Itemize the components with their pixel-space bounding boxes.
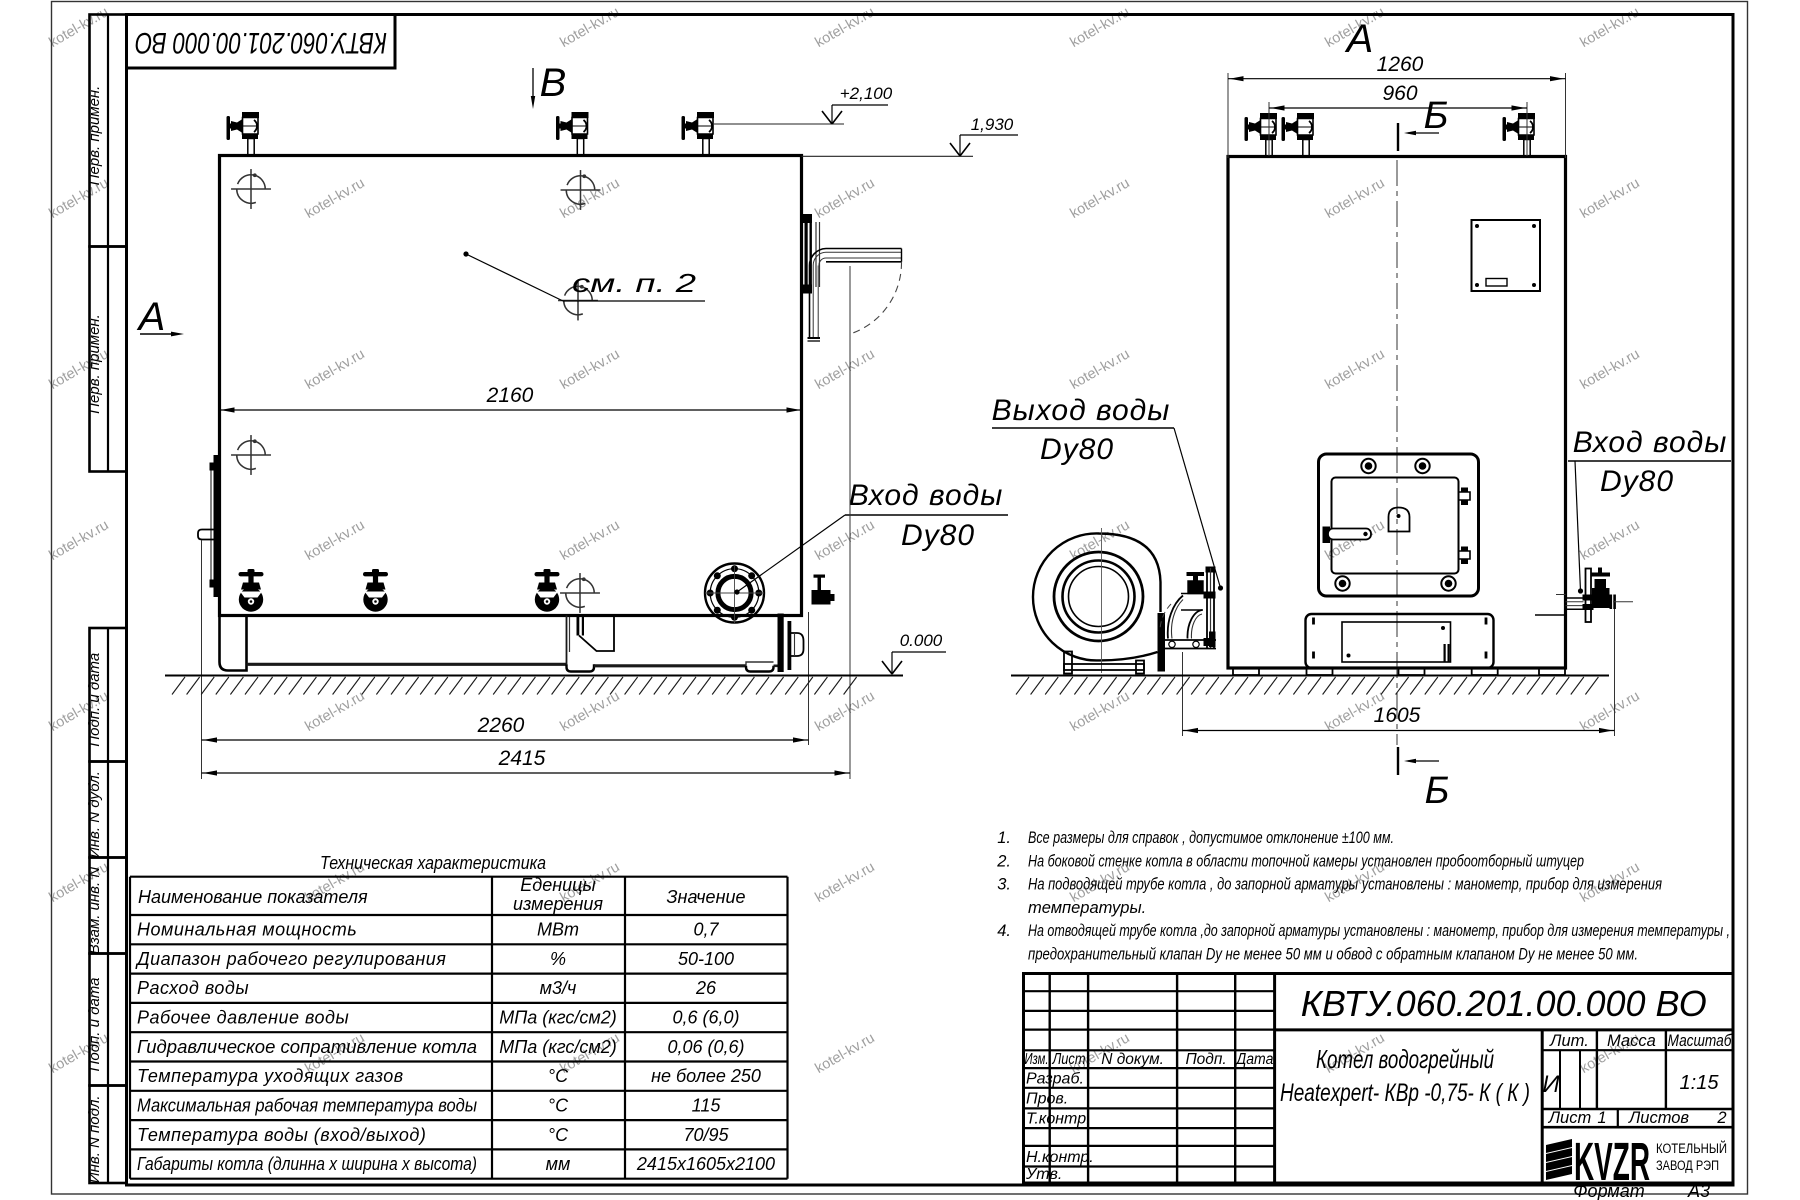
svg-text:1: 1: [1597, 1109, 1606, 1127]
svg-text:На боковой стенке котла в обла: На боковой стенке котла в области топочн…: [1028, 852, 1584, 870]
svg-text:Подп.: Подп.: [1185, 1051, 1226, 1068]
svg-text:Подп. и дата: Подп. и дата: [86, 653, 103, 747]
svg-text:Температура уходящих газов: Температура уходящих газов: [137, 1066, 404, 1086]
svg-text:Наименование показателя: Наименование показателя: [138, 887, 368, 907]
svg-text:МПа (кгс/см2): МПа (кгс/см2): [499, 1037, 617, 1057]
svg-text:°С: °С: [548, 1066, 569, 1086]
svg-text:МПа (кгс/см2): МПа (кгс/см2): [499, 1008, 617, 1028]
svg-text:А: А: [1345, 17, 1374, 61]
svg-text:Рабочее давление воды: Рабочее давление воды: [137, 1008, 349, 1028]
svg-text:1260: 1260: [1377, 53, 1424, 76]
svg-text:Выход воды: Выход воды: [992, 394, 1171, 427]
svg-text:Вход воды: Вход воды: [849, 479, 1004, 512]
svg-text:Dy80: Dy80: [1040, 433, 1114, 466]
svg-text:1,930: 1,930: [971, 115, 1014, 134]
svg-text:1605: 1605: [1374, 704, 1421, 727]
svg-text:Формат: Формат: [1573, 1181, 1644, 1200]
svg-text:Подп. и дата: Подп. и дата: [86, 978, 103, 1072]
svg-text:Вход воды: Вход воды: [1573, 426, 1728, 459]
svg-text:Все размеры для справок , допу: Все размеры для справок , допустимое отк…: [1028, 829, 1394, 847]
svg-text:Масса: Масса: [1607, 1032, 1656, 1050]
svg-text:КВТУ.060.201.00.000 ВО: КВТУ.060.201.00.000 ВО: [1301, 983, 1707, 1024]
svg-text:Разраб.: Разраб.: [1026, 1071, 1084, 1088]
svg-text:Н.контр.: Н.контр.: [1026, 1149, 1094, 1166]
svg-text:2260: 2260: [477, 714, 525, 737]
svg-text:Лит.: Лит.: [1549, 1032, 1589, 1050]
svg-text:И: И: [1542, 1071, 1560, 1098]
svg-text:115: 115: [692, 1095, 722, 1115]
svg-text:ЗАВОД РЭП: ЗАВОД РЭП: [1656, 1158, 1719, 1173]
svg-text:Еденицы: Еденицы: [520, 875, 595, 895]
svg-text:1.: 1.: [997, 829, 1011, 847]
svg-text:4.: 4.: [997, 922, 1011, 940]
svg-text:+2,100: +2,100: [840, 84, 893, 103]
svg-text:Габариты котла (длинна х ширин: Габариты котла (длинна х ширина х высота…: [137, 1154, 477, 1174]
svg-text:Dy80: Dy80: [1600, 465, 1674, 498]
svg-text:0.000: 0.000: [900, 631, 943, 650]
svg-text:50-100: 50-100: [678, 949, 734, 969]
svg-text:960: 960: [1382, 82, 1417, 105]
svg-text:Номинальная мощность: Номинальная мощность: [137, 920, 357, 940]
svg-text:70/95: 70/95: [683, 1125, 729, 1145]
svg-text:2415: 2415: [498, 747, 546, 770]
svg-text:1:15: 1:15: [1680, 1072, 1720, 1094]
svg-text:Инв. N дубл.: Инв. N дубл.: [86, 771, 103, 858]
svg-text:Инв. N подл.: Инв. N подл.: [86, 1095, 103, 1183]
svg-text:предохранительный клапан Dу н: предохранительный клапан Dу не менее 50 …: [1028, 946, 1638, 964]
svg-text:2160: 2160: [486, 384, 534, 407]
svg-text:26: 26: [695, 978, 717, 998]
svg-text:А3: А3: [1687, 1181, 1710, 1200]
svg-text:На отводящей трубе котла ,до з: На отводящей трубе котла ,до запорной ар…: [1028, 922, 1730, 940]
svg-text:N докум.: N докум.: [1101, 1051, 1164, 1068]
svg-text:Дата: Дата: [1235, 1051, 1274, 1068]
svg-text:не более 250: не более 250: [651, 1066, 761, 1086]
svg-text:Б: Б: [1424, 95, 1449, 137]
svg-text:измерения: измерения: [513, 894, 603, 914]
svg-text:Лист: Лист: [1052, 1051, 1086, 1068]
svg-text:Т.контр.: Т.контр.: [1026, 1111, 1091, 1128]
svg-text:Heatexpert- КВр -0,75- К ( К ): Heatexpert- КВр -0,75- К ( К ): [1280, 1079, 1530, 1107]
svg-text:0,7: 0,7: [693, 920, 719, 940]
svg-text:3.: 3.: [997, 876, 1011, 894]
svg-text:Техническая характеристика: Техническая характеристика: [320, 852, 546, 873]
svg-text:В: В: [540, 61, 567, 105]
svg-text:Взам. инв. N: Взам. инв. N: [86, 867, 103, 955]
svg-text:мм: мм: [546, 1154, 571, 1174]
svg-text:Перв. примен.: Перв. примен.: [86, 86, 103, 186]
svg-text:Гидравлическое сопративление к: Гидравлическое сопративление котла: [137, 1037, 477, 1057]
svg-text:м3/ч: м3/ч: [540, 978, 577, 998]
svg-text:Изм.: Изм.: [1025, 1051, 1049, 1068]
svg-text:Перв. примен.: Перв. примен.: [86, 314, 103, 414]
svg-text:0,06 (0,6): 0,06 (0,6): [667, 1037, 744, 1057]
svg-text:Утв.: Утв.: [1025, 1166, 1062, 1183]
svg-text:Лист: Лист: [1548, 1109, 1591, 1127]
svg-text:2.: 2.: [996, 852, 1011, 870]
svg-text:Значение: Значение: [666, 887, 745, 907]
svg-text:см. п. 2: см. п. 2: [572, 268, 697, 298]
svg-text:Диапазон рабочего регулировани: Диапазон рабочего регулирования: [135, 949, 446, 969]
svg-text:КОТЕЛЬНЫЙ: КОТЕЛЬНЫЙ: [1656, 1141, 1727, 1156]
svg-text:МВт: МВт: [537, 920, 579, 940]
svg-text:Котел водогрейный: Котел водогрейный: [1316, 1044, 1494, 1074]
svg-text:°С: °С: [548, 1095, 569, 1115]
svg-text:Температура воды (вход/выход): Температура воды (вход/выход): [137, 1125, 426, 1145]
svg-text:КВТУ.060.201.00.000 ВО: КВТУ.060.201.00.000 ВО: [135, 26, 387, 59]
svg-text:2: 2: [1716, 1109, 1726, 1127]
svg-text:На подводящей трубе котла ,: На подводящей трубе котла , до запорной …: [1028, 876, 1662, 894]
svg-text:А: А: [137, 295, 166, 339]
svg-text:%: %: [550, 949, 566, 969]
svg-text:2415х1605х2100: 2415х1605х2100: [636, 1154, 775, 1174]
svg-text:0,6 (6,0): 0,6 (6,0): [672, 1008, 739, 1028]
svg-text:Расход воды: Расход воды: [137, 978, 249, 998]
svg-text:Dy80: Dy80: [901, 519, 975, 552]
svg-text:Б: Б: [1425, 770, 1450, 812]
svg-text:Листов: Листов: [1628, 1109, 1689, 1127]
svg-text:Пров.: Пров.: [1026, 1091, 1068, 1108]
svg-text:Максимальная рабочая температу: Максимальная рабочая температура воды: [137, 1095, 477, 1115]
svg-text:температуры.: температуры.: [1028, 899, 1146, 917]
svg-text:°С: °С: [548, 1125, 569, 1145]
svg-text:Масштаб: Масштаб: [1668, 1032, 1733, 1050]
